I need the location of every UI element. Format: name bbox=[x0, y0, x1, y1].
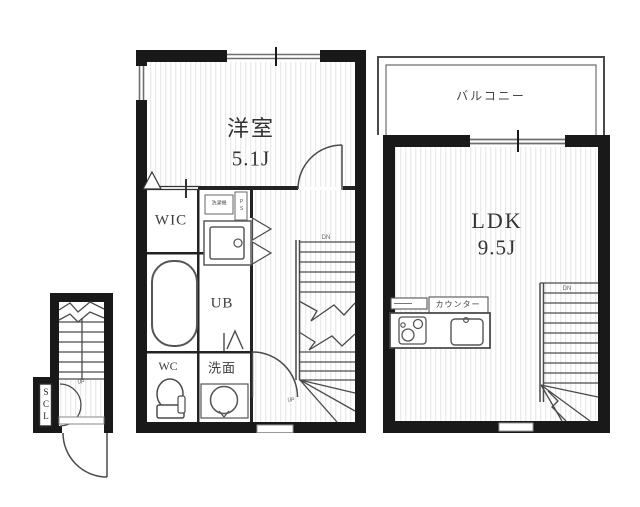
counter-label: カウンター bbox=[436, 301, 481, 309]
senmen-label: 洗面 bbox=[208, 362, 236, 375]
floor1-up-label: UP bbox=[288, 399, 295, 404]
ps-label: PS bbox=[239, 199, 244, 213]
bedroom-size: 5.1J bbox=[232, 149, 270, 170]
sink-icon bbox=[201, 384, 248, 418]
entrance-floor bbox=[59, 380, 104, 418]
toilet-icon bbox=[157, 379, 185, 418]
window-top-icon bbox=[227, 55, 320, 59]
bathtub-icon bbox=[152, 261, 197, 346]
ub-label: UB bbox=[211, 297, 234, 312]
entrance-door-icon bbox=[63, 433, 107, 477]
floorplan-image: 洋室 5.1J WIC UB WC 洗面 洗濯機 PS DN UP バルコニー … bbox=[0, 0, 640, 507]
bath-door-icon bbox=[224, 331, 243, 351]
entrance-stairs-icon bbox=[59, 302, 104, 379]
genkan-step bbox=[59, 417, 104, 424]
washing-machine-pan-icon bbox=[204, 221, 251, 265]
floor1-dn-label: DN bbox=[322, 235, 331, 241]
ldk-label: LDK bbox=[471, 210, 522, 232]
entrance-up-label: UP bbox=[78, 381, 85, 386]
floorplan-drawing bbox=[0, 0, 640, 507]
floor1-plan bbox=[136, 47, 366, 433]
wc-label: WC bbox=[158, 360, 177, 372]
vent-window-icon bbox=[257, 425, 293, 433]
washer-label: 洗濯機 bbox=[211, 202, 226, 207]
bedroom-label: 洋室 bbox=[227, 118, 275, 140]
window-left-icon bbox=[140, 66, 144, 100]
wic-label: WIC bbox=[155, 214, 187, 229]
hall-floor bbox=[253, 190, 355, 422]
ldk-floor bbox=[395, 147, 598, 421]
ldk-size: 9.5J bbox=[478, 238, 516, 259]
entrance-plan bbox=[33, 293, 113, 477]
balcony-label: バルコニー bbox=[456, 90, 526, 102]
scl-label: SCL bbox=[41, 387, 50, 423]
vent-window2-icon bbox=[499, 423, 533, 431]
floor2-dn-label: DN bbox=[563, 286, 572, 292]
